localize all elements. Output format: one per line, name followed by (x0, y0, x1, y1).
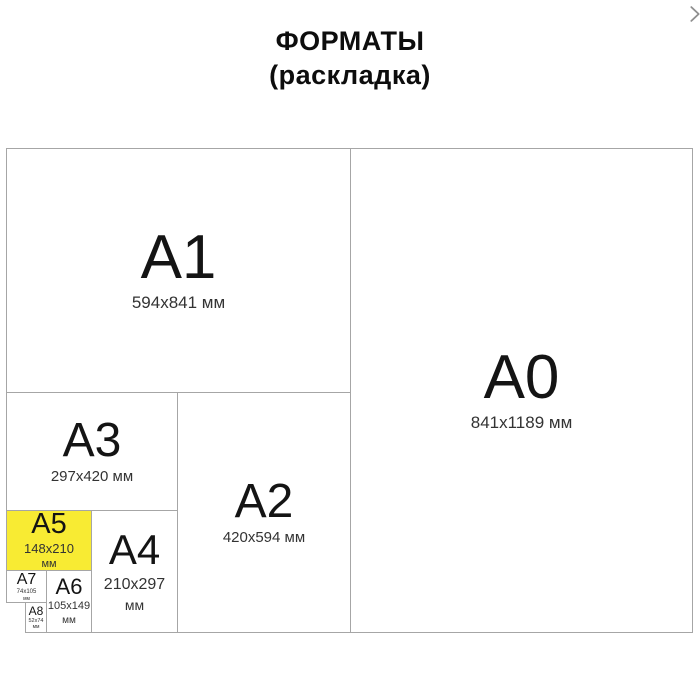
format-box-a8: A8 52x74 мм (25, 602, 47, 633)
format-box-a7: A7 74x105 мм (6, 570, 47, 603)
format-a8-label: A8 (29, 605, 44, 617)
page-title-line1: ФОРМАТЫ (0, 24, 700, 58)
format-box-a2: A2 420x594 мм (177, 392, 351, 633)
format-a6-label: A6 (56, 576, 83, 598)
format-a7-dimensions: 74x105 (17, 589, 37, 596)
paper-formats-infographic: ФОРМАТЫ (раскладка) A1 594x841 мм A0 841… (0, 0, 700, 700)
format-a5-unit: мм (41, 558, 56, 571)
format-a1-dimensions: 594x841 мм (132, 293, 225, 313)
format-a4-label: A4 (109, 529, 160, 571)
format-a8-unit: мм (33, 624, 40, 630)
format-a2-dimensions: 420x594 мм (223, 529, 305, 547)
format-a6-dimensions: 105x149 (48, 600, 90, 613)
format-box-a5-highlighted: A5 148x210 мм (6, 510, 92, 571)
format-box-a4: A4 210x297 мм (91, 510, 178, 633)
format-a4-unit: мм (125, 597, 144, 614)
format-a5-dimensions: 148x210 (24, 541, 74, 557)
format-a7-label: A7 (17, 572, 37, 588)
format-a8-dimensions: 52x74 (29, 618, 44, 625)
format-a4-dimensions: 210x297 (104, 575, 165, 594)
format-a3-dimensions: 297x420 мм (51, 468, 133, 486)
format-a0-dimensions: 841x1189 мм (471, 413, 573, 433)
format-a2-label: A2 (235, 478, 294, 526)
format-box-a0: A0 841x1189 мм (350, 148, 693, 633)
chevron-right-icon[interactable] (684, 3, 700, 25)
format-a0-label: A0 (484, 347, 560, 409)
format-box-a6: A6 105x149 мм (46, 570, 92, 633)
page-title-line2: (раскладка) (0, 58, 700, 92)
page-title: ФОРМАТЫ (раскладка) (0, 24, 700, 92)
format-a5-label: A5 (31, 510, 66, 539)
format-box-a1: A1 594x841 мм (6, 148, 351, 393)
format-a6-unit: мм (62, 615, 76, 627)
format-a3-label: A3 (63, 417, 122, 465)
format-box-a3: A3 297x420 мм (6, 392, 178, 511)
format-a1-label: A1 (141, 227, 217, 289)
